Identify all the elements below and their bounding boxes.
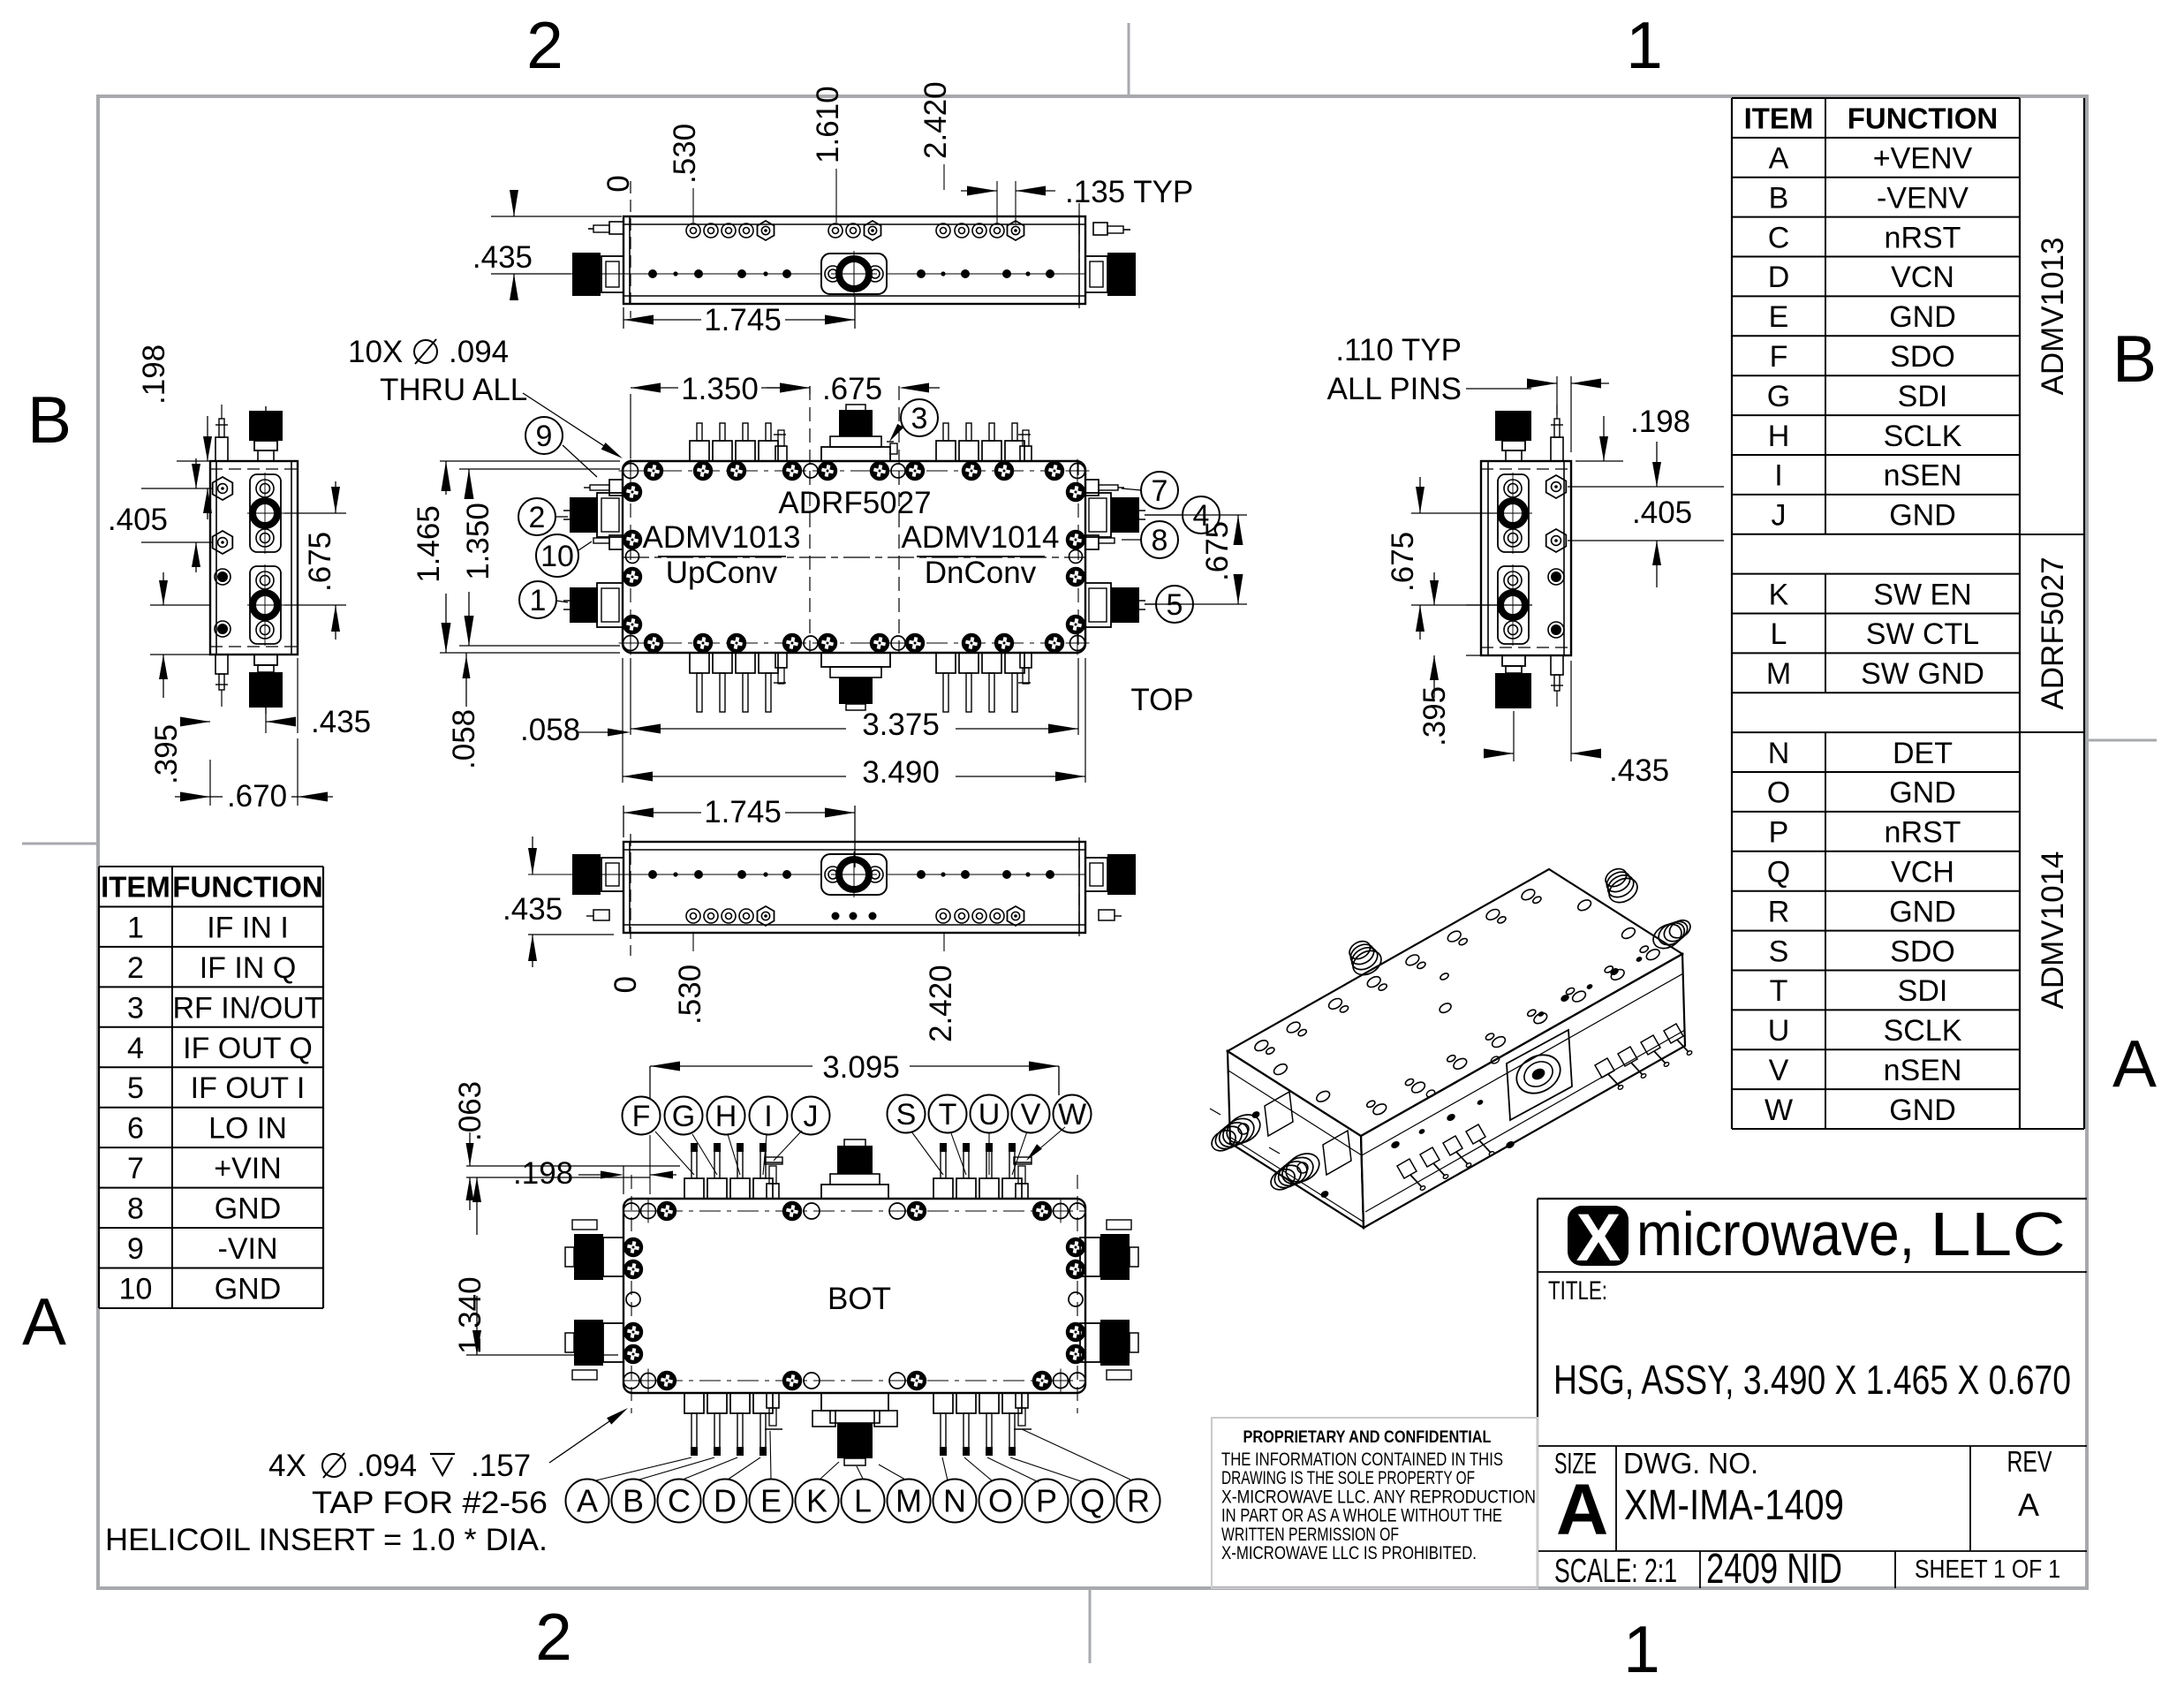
svg-text:.094: .094 [449, 335, 509, 369]
svg-text:VCN: VCN [1891, 261, 1954, 294]
svg-text:1.350: 1.350 [681, 372, 759, 406]
svg-text:SDO: SDO [1890, 340, 1955, 374]
svg-text:+VIN: +VIN [214, 1152, 282, 1185]
svg-text:3.095: 3.095 [822, 1050, 900, 1085]
svg-text:V: V [1021, 1098, 1041, 1132]
svg-text:.198: .198 [137, 344, 171, 405]
svg-text:L: L [1771, 617, 1787, 651]
svg-text:0: 0 [601, 175, 636, 192]
svg-text:S: S [896, 1098, 917, 1132]
svg-text:TITLE:: TITLE: [1548, 1276, 1607, 1306]
svg-text:A: A [577, 1483, 598, 1519]
svg-text:nRST: nRST [1885, 221, 1961, 254]
svg-text:L: L [854, 1483, 872, 1519]
svg-text:X-MICROWAVE LLC IS PROHIBITED.: X-MICROWAVE LLC IS PROHIBITED. [1221, 1543, 1477, 1563]
svg-text:Q: Q [1767, 855, 1790, 889]
svg-text:.395: .395 [1417, 686, 1452, 746]
svg-text:SCLK: SCLK [1884, 1014, 1962, 1048]
svg-text:GND: GND [215, 1272, 282, 1306]
svg-text:+VENV: +VENV [1873, 142, 1973, 176]
svg-text:VCH: VCH [1891, 855, 1954, 889]
svg-text:DnConv: DnConv [925, 556, 1037, 590]
svg-text:R: R [1127, 1483, 1150, 1519]
svg-text:.530: .530 [668, 124, 702, 184]
svg-text:I: I [764, 1100, 772, 1133]
svg-text:F: F [632, 1100, 651, 1133]
svg-text:C: C [668, 1483, 691, 1519]
svg-text:.110 TYP: .110 TYP [1335, 333, 1462, 367]
svg-text:E: E [760, 1483, 782, 1519]
svg-text:2.420: 2.420 [918, 81, 953, 159]
svg-text:9: 9 [127, 1232, 144, 1266]
svg-text:FUNCTION: FUNCTION [1848, 102, 1998, 134]
svg-text:H: H [1768, 420, 1790, 453]
svg-text:.135 TYP: .135 TYP [1065, 175, 1193, 209]
svg-text:.198: .198 [513, 1156, 573, 1191]
svg-text:.530: .530 [673, 965, 707, 1025]
svg-text:LLC: LLC [1930, 1200, 2066, 1268]
svg-text:2: 2 [526, 8, 563, 82]
svg-text:W: W [1058, 1098, 1086, 1132]
svg-text:ADMV1014: ADMV1014 [2036, 852, 2070, 1010]
svg-text:1: 1 [1626, 8, 1663, 82]
svg-text:3.375: 3.375 [862, 708, 940, 742]
svg-text:ITEM: ITEM [101, 871, 170, 904]
svg-text:S: S [1769, 935, 1789, 968]
svg-text:ADRF5027: ADRF5027 [778, 486, 931, 520]
svg-text:5: 5 [1167, 588, 1183, 622]
svg-text:B: B [1769, 181, 1789, 215]
svg-text:XM-IMA-1409: XM-IMA-1409 [1624, 1482, 1844, 1529]
svg-text:.670: .670 [227, 779, 287, 814]
svg-text:2: 2 [535, 1600, 572, 1674]
svg-text:WRITTEN PERMISSION OF: WRITTEN PERMISSION OF [1221, 1525, 1399, 1545]
svg-text:2.420: 2.420 [924, 965, 958, 1042]
svg-text:.675: .675 [303, 532, 337, 592]
svg-text:DWG. NO.: DWG. NO. [1623, 1447, 1758, 1480]
svg-text:nSEN: nSEN [1884, 459, 1962, 493]
svg-text:nSEN: nSEN [1884, 1054, 1962, 1087]
svg-text:SW CTL: SW CTL [1866, 617, 1979, 651]
svg-text:J: J [1772, 499, 1787, 533]
svg-text:1.350: 1.350 [461, 503, 495, 580]
svg-text:G: G [1767, 380, 1790, 413]
svg-text:BOT: BOT [828, 1282, 891, 1316]
svg-text:SDO: SDO [1890, 935, 1955, 968]
svg-text:IN PART OR AS A WHOLE WITHOUT: IN PART OR AS A WHOLE WITHOUT THE [1221, 1506, 1502, 1526]
svg-text:7: 7 [127, 1152, 144, 1185]
svg-text:SCLK: SCLK [1884, 420, 1962, 453]
svg-text:REV: REV [2007, 1445, 2052, 1478]
svg-text:-VIN: -VIN [218, 1232, 278, 1266]
svg-text:A: A [22, 1284, 66, 1359]
svg-text:SW GND: SW GND [1861, 657, 1984, 691]
svg-text:D: D [714, 1483, 737, 1519]
svg-text:UpConv: UpConv [666, 556, 778, 590]
svg-text:ADMV1013: ADMV1013 [643, 520, 801, 555]
svg-text:GND: GND [1889, 895, 1956, 928]
svg-text:K: K [806, 1483, 828, 1519]
svg-text:2: 2 [127, 951, 144, 985]
svg-text:B: B [27, 382, 72, 457]
svg-text:A: A [2018, 1487, 2039, 1523]
svg-text:.405: .405 [1632, 496, 1692, 530]
svg-text:.058: .058 [520, 713, 580, 747]
svg-text:K: K [1769, 578, 1789, 611]
svg-text:2: 2 [529, 501, 546, 534]
svg-text:1.340: 1.340 [453, 1276, 487, 1354]
svg-text:A: A [1769, 142, 1789, 176]
svg-text:O: O [988, 1483, 1013, 1519]
svg-text:GND: GND [1889, 776, 1956, 810]
svg-text:microwave,: microwave, [1636, 1200, 1915, 1268]
svg-text:SDI: SDI [1898, 974, 1948, 1008]
svg-text:F: F [1770, 340, 1788, 374]
svg-text:R: R [1768, 895, 1790, 928]
svg-text:SW EN: SW EN [1873, 578, 1971, 611]
svg-text:Q: Q [1080, 1483, 1105, 1519]
svg-text:THE INFORMATION CONTAINED IN T: THE INFORMATION CONTAINED IN THIS [1221, 1450, 1503, 1470]
svg-text:0: 0 [608, 976, 643, 993]
svg-text:U: U [1768, 1014, 1790, 1048]
svg-text:U: U [979, 1098, 1001, 1132]
svg-text:SHEET 1 OF 1: SHEET 1 OF 1 [1915, 1556, 2060, 1584]
svg-text:SDI: SDI [1898, 380, 1948, 413]
svg-text:IF OUT I: IF OUT I [191, 1071, 306, 1105]
svg-text:C: C [1768, 221, 1790, 254]
svg-text:W: W [1765, 1094, 1793, 1127]
svg-text:8: 8 [127, 1192, 144, 1226]
svg-text:-VENV: -VENV [1877, 181, 1969, 215]
svg-text:.435: .435 [472, 240, 533, 275]
svg-text:nRST: nRST [1885, 816, 1961, 850]
svg-text:FUNCTION: FUNCTION [172, 871, 322, 904]
svg-text:B: B [623, 1483, 644, 1519]
svg-text:PROPRIETARY AND CONFIDENTIAL: PROPRIETARY AND CONFIDENTIAL [1243, 1427, 1492, 1447]
svg-text:10X: 10X [348, 335, 403, 369]
svg-text:P: P [1036, 1483, 1057, 1519]
svg-text:1: 1 [530, 584, 547, 617]
svg-text:3: 3 [127, 991, 144, 1025]
svg-text:DRAWING IS THE SOLE PROPERTY O: DRAWING IS THE SOLE PROPERTY OF [1221, 1468, 1475, 1488]
svg-text:M: M [896, 1483, 922, 1519]
svg-text:3.490: 3.490 [862, 755, 940, 790]
svg-text:.058: .058 [447, 709, 481, 769]
svg-text:N: N [943, 1483, 966, 1519]
svg-text:1.465: 1.465 [412, 505, 446, 583]
svg-text:DET: DET [1893, 737, 1953, 770]
svg-text:1.745: 1.745 [704, 303, 782, 337]
svg-text:.435: .435 [503, 892, 563, 927]
svg-text:HSG, ASSY, 3.490 X 1.465 X 0.6: HSG, ASSY, 3.490 X 1.465 X 0.670 [1553, 1357, 2071, 1403]
svg-text:4X: 4X [268, 1449, 306, 1483]
svg-text:J: J [804, 1100, 819, 1133]
svg-text:E: E [1769, 300, 1789, 334]
svg-text:SCALE: 2:1: SCALE: 2:1 [1554, 1553, 1677, 1590]
svg-text:9: 9 [536, 420, 553, 453]
svg-text:IF IN I: IF IN I [207, 911, 289, 944]
svg-text:TAP FOR #2-56: TAP FOR #2-56 [312, 1486, 548, 1520]
svg-text:V: V [1769, 1054, 1789, 1087]
svg-text:10: 10 [119, 1272, 153, 1306]
svg-text:4: 4 [127, 1032, 144, 1065]
svg-text:X: X [1576, 1200, 1621, 1275]
svg-text:.157: .157 [471, 1449, 531, 1483]
svg-text:IF OUT Q: IF OUT Q [183, 1032, 313, 1065]
svg-text:10: 10 [540, 540, 574, 573]
svg-text:D: D [1768, 261, 1790, 294]
svg-text:.395: .395 [149, 724, 184, 784]
svg-text:M: M [1766, 657, 1791, 691]
svg-text:X-MICROWAVE LLC. ANY REPRODUC: X-MICROWAVE LLC. ANY REPRODUCTION [1221, 1487, 1536, 1507]
svg-text:ITEM: ITEM [1744, 102, 1814, 134]
svg-text:.435: .435 [311, 705, 371, 739]
svg-text:G: G [672, 1100, 695, 1133]
svg-text:RF IN/OUT: RF IN/OUT [173, 991, 323, 1025]
svg-text:B: B [2112, 322, 2157, 396]
svg-text:.675: .675 [822, 372, 882, 406]
svg-text:ALL PINS: ALL PINS [1327, 372, 1462, 406]
svg-text:3: 3 [911, 402, 928, 435]
svg-text:ADMV1013: ADMV1013 [2036, 238, 2070, 396]
svg-text:GND: GND [1889, 1094, 1956, 1127]
svg-text:.198: .198 [1630, 405, 1690, 439]
svg-text:I: I [1774, 459, 1782, 493]
svg-text:1.610: 1.610 [811, 86, 845, 163]
svg-text:GND: GND [1889, 300, 1956, 334]
svg-text:O: O [1767, 776, 1790, 810]
svg-text:1.745: 1.745 [704, 795, 782, 829]
svg-text:A: A [2112, 1026, 2157, 1101]
svg-text:ADMV1014: ADMV1014 [902, 520, 1060, 555]
svg-text:7: 7 [1152, 474, 1168, 508]
svg-text:TOP: TOP [1130, 683, 1193, 717]
svg-text:.675: .675 [1200, 521, 1235, 581]
svg-text:A: A [1556, 1470, 1608, 1550]
svg-text:THRU ALL: THRU ALL [380, 373, 527, 407]
svg-text:1: 1 [1623, 1612, 1660, 1684]
svg-text:2409 NID: 2409 NID [1706, 1546, 1842, 1593]
svg-text:HELICOIL INSERT = 1.0 * DIA.: HELICOIL INSERT = 1.0 * DIA. [105, 1523, 548, 1557]
svg-text:N: N [1768, 737, 1790, 770]
svg-text:1: 1 [127, 911, 144, 944]
svg-text:5: 5 [127, 1071, 144, 1105]
svg-text:8: 8 [1152, 524, 1168, 557]
svg-text:.063: .063 [453, 1081, 487, 1141]
svg-text:P: P [1769, 816, 1789, 850]
svg-text:.435: .435 [1609, 753, 1669, 788]
svg-text:T: T [1770, 974, 1788, 1008]
svg-text:.094: .094 [357, 1449, 417, 1483]
svg-text:T: T [939, 1098, 957, 1132]
svg-text:H: H [715, 1100, 737, 1133]
svg-text:6: 6 [127, 1112, 144, 1146]
svg-text:GND: GND [215, 1192, 282, 1226]
svg-text:ADRF5027: ADRF5027 [2036, 556, 2070, 709]
svg-text:LO IN: LO IN [208, 1112, 287, 1146]
svg-text:IF IN Q: IF IN Q [200, 951, 297, 985]
svg-text:.405: .405 [108, 503, 168, 537]
svg-text:GND: GND [1889, 499, 1956, 533]
svg-text:.675: .675 [1386, 532, 1420, 592]
